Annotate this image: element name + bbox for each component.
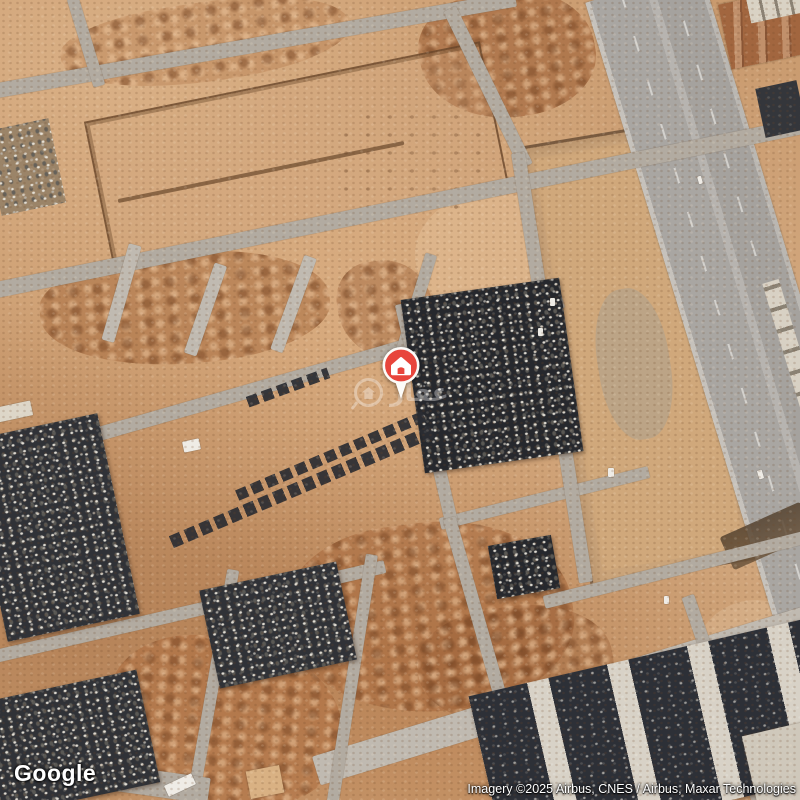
map-marker[interactable] [378, 345, 424, 408]
marker-pin-graphic [378, 345, 424, 403]
vehicle [664, 596, 669, 604]
vehicle [538, 328, 543, 336]
construction-unit-row [235, 410, 428, 500]
google-logo[interactable]: Google [14, 760, 96, 787]
home-door [398, 367, 405, 374]
construction-site [401, 278, 584, 474]
house-glyph [362, 387, 375, 399]
construction-site [0, 413, 140, 642]
construction-site [488, 535, 560, 599]
vehicle [608, 468, 614, 477]
vehicle [550, 298, 555, 306]
satellite-map-canvas[interactable]: عقار Google Imagery ©2025 Airbus, CNES /… [0, 0, 800, 800]
white-structure [182, 438, 201, 452]
white-structure [0, 400, 33, 422]
imagery-attribution: Imagery ©2025 Airbus, CNES / Airbus, Max… [467, 782, 796, 796]
construction-debris [0, 118, 66, 216]
